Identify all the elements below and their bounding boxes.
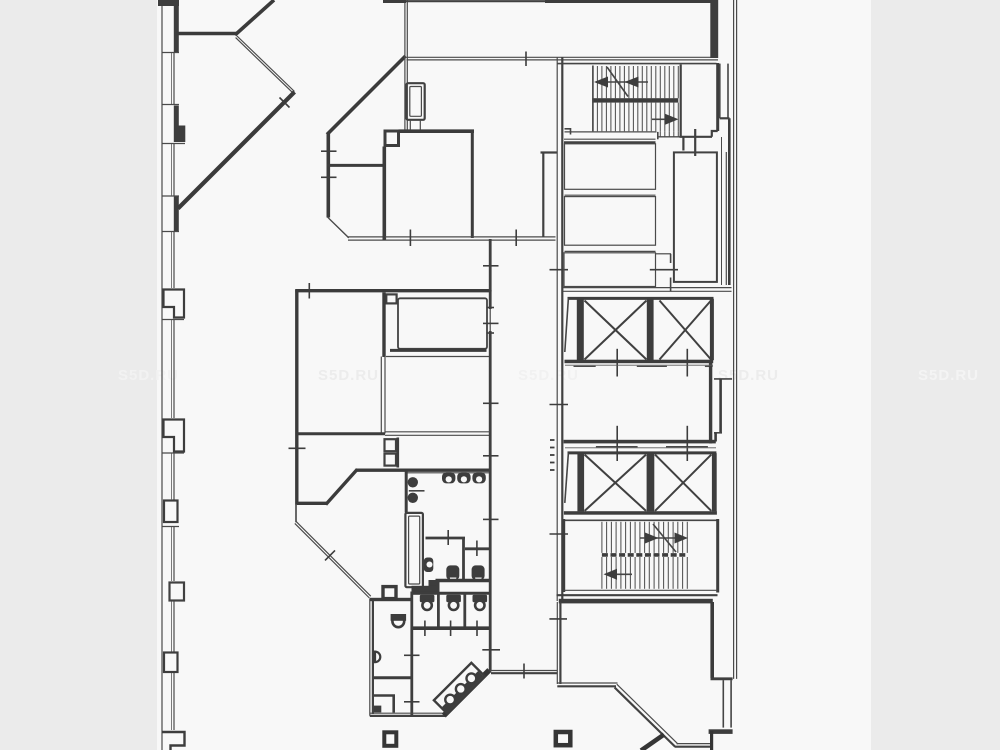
svg-text:S5D.RU: S5D.RU bbox=[518, 367, 579, 384]
svg-text:S5D.RU: S5D.RU bbox=[118, 367, 179, 384]
svg-text:S5D.RU: S5D.RU bbox=[318, 367, 379, 384]
svg-text:S5D.RU: S5D.RU bbox=[918, 367, 979, 384]
svg-text:S5D.RU: S5D.RU bbox=[718, 367, 779, 384]
